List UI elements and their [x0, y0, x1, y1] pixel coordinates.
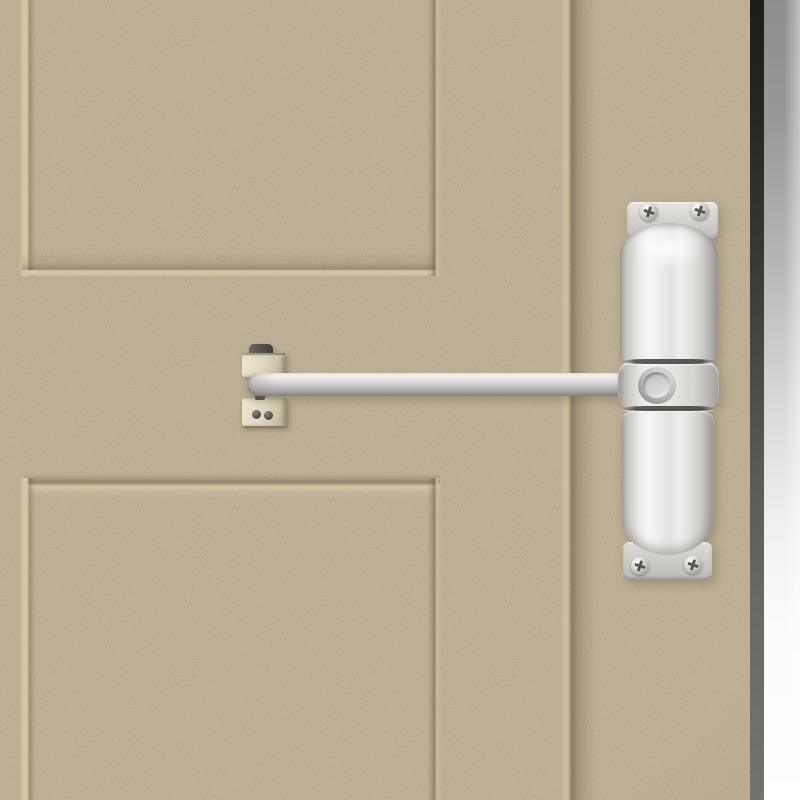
mounting-screw: [684, 556, 702, 574]
bracket-screw: [252, 410, 261, 419]
door-edge: [750, 0, 764, 800]
door-closer: [600, 195, 745, 595]
bracket-lower-block: [242, 398, 287, 426]
closer-arm: [247, 373, 629, 396]
mounting-screw: [631, 557, 649, 575]
adjustment-hole-recess: [643, 372, 670, 398]
product-image: [0, 0, 800, 800]
bracket-screw: [264, 411, 273, 420]
mounting-screw: [640, 203, 658, 221]
tube-seam-upper: [622, 359, 715, 364]
adjustment-hole: [638, 367, 676, 404]
door-frame-background: [764, 0, 800, 800]
tube-seam-lower: [622, 406, 715, 411]
lower-spring-tube: [621, 410, 714, 555]
upper-spring-tube: [620, 223, 717, 365]
mounting-screw: [691, 202, 709, 220]
background-sheen: [764, 0, 800, 800]
